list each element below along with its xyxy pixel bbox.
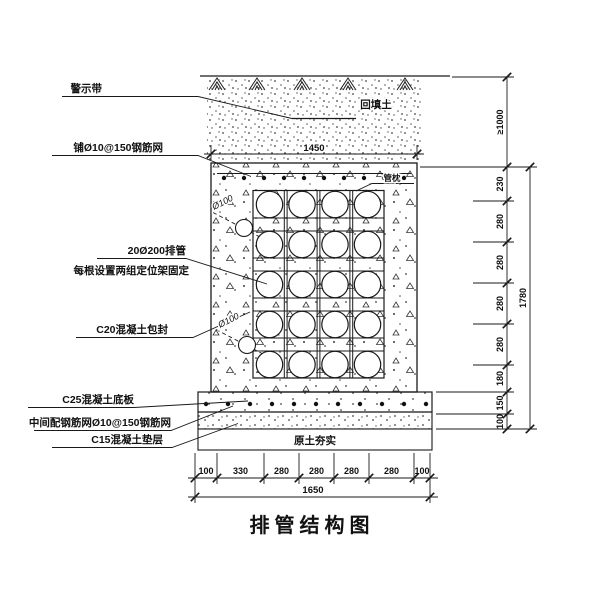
warning-tape-label: 警示带	[70, 82, 103, 95]
bottom-chain-value: 100	[198, 466, 213, 476]
right-chain-value: 150	[495, 395, 505, 410]
mid-mesh-label: 中间配钢筋网Ø10@150钢筋网	[29, 416, 171, 429]
encasement-label: C20混凝土包封	[96, 323, 168, 336]
right-chain-value: 100	[495, 414, 505, 429]
top-mesh-label: 铺Ø10@150钢筋网	[73, 141, 163, 154]
bottom-chain-value: 280	[384, 466, 399, 476]
pipe-pillow-label: 管枕	[383, 173, 401, 183]
right-chain-value: 280	[495, 337, 505, 352]
pipe-fixing-label: 每根设置两组定位架固定	[74, 264, 190, 277]
overall-height-value: 1780	[518, 288, 528, 308]
bottom-chain-value: 280	[309, 466, 324, 476]
bottom-total-value: 1650	[302, 485, 323, 496]
pipe-structure-diagram: 警示带 铺Ø10@150钢筋网 20Ø200排管 每根设置两组定位架固定 C20…	[0, 0, 600, 600]
compacted-soil-label: 原土夯实	[294, 434, 336, 447]
right-dimension-lines	[420, 73, 537, 433]
drawing-title: 排管结构图	[250, 513, 375, 537]
top-width-value: 1450	[303, 143, 324, 154]
concrete-encasement-block	[211, 163, 417, 392]
right-chain-value: 180	[495, 371, 505, 386]
right-chain-value: 230	[495, 176, 505, 191]
drawing-sheet: 警示带 铺Ø10@150钢筋网 20Ø200排管 每根设置两组定位架固定 C20…	[0, 0, 600, 600]
bottom-chain-value: 280	[344, 466, 359, 476]
right-chain-value: 280	[495, 255, 505, 270]
cushion-layer	[198, 412, 432, 429]
min-cover-value: ≥1000	[495, 110, 505, 135]
bottom-chain-value: 280	[274, 466, 289, 476]
backfill-label: 回填土	[360, 98, 392, 111]
bottom-chain-value: 100	[414, 466, 429, 476]
pipe-count-label: 20Ø200排管	[128, 244, 187, 257]
right-chain-value: 280	[495, 214, 505, 229]
base-slab-label: C25混凝土底板	[62, 393, 134, 406]
right-chain-value: 280	[495, 296, 505, 311]
bottom-chain-value: 330	[233, 466, 248, 476]
cushion-label: C15混凝土垫层	[91, 433, 163, 446]
